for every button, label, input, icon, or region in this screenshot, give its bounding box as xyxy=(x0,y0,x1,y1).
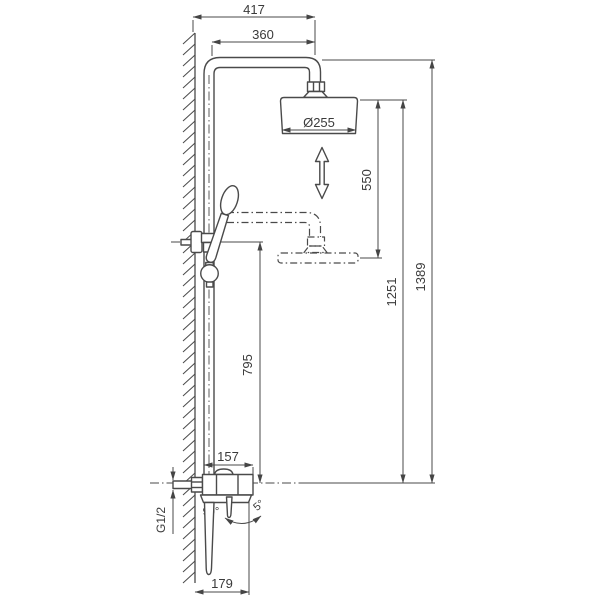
angle-label-5: 5° xyxy=(251,498,267,514)
shower-column-technical-drawing: 417 360 1389 1251 550 xyxy=(0,0,600,600)
phantom-lowered-position xyxy=(227,213,358,264)
mixer-body xyxy=(203,475,254,496)
slider-knob xyxy=(201,265,219,283)
head-ball-joint xyxy=(304,92,328,98)
dim-label-1389: 1389 xyxy=(413,263,428,292)
cartridge-dome xyxy=(215,469,234,475)
dim-label-1251: 1251 xyxy=(384,278,399,307)
dim-label-157: 157 xyxy=(217,449,239,464)
phantom-ball-joint xyxy=(304,246,327,253)
wall xyxy=(183,33,195,583)
dimension-550: 550 xyxy=(359,100,382,258)
wall-supply-stub xyxy=(181,240,192,246)
dim-label-795: 795 xyxy=(240,354,255,376)
wall-bracket-flange xyxy=(191,232,202,253)
dim-label-360: 360 xyxy=(252,27,274,42)
diverter-lever xyxy=(227,497,233,518)
slider-lower-joint xyxy=(207,282,214,287)
dim-label-417: 417 xyxy=(243,2,265,17)
overhead-shower: Ø255 xyxy=(281,82,358,134)
dimension-thread: G1/2 xyxy=(154,467,173,534)
dim-label-550: 550 xyxy=(359,169,374,191)
hand-shower-assembly xyxy=(171,183,242,287)
dim-label-thread: G1/2 xyxy=(154,507,168,533)
dim-label-179: 179 xyxy=(211,576,233,591)
phantom-connector-nut xyxy=(308,237,325,246)
wall-hatch xyxy=(183,33,195,583)
inlet-hex-nut xyxy=(192,478,203,493)
dim-label-head-diameter: Ø255 xyxy=(303,115,335,130)
dimension-360: 360 xyxy=(212,27,315,56)
inlet-pipe-stub xyxy=(173,481,192,489)
dimension-795: 795 xyxy=(220,242,263,483)
phantom-arm-inner xyxy=(227,223,310,238)
dimension-1251: 1251 xyxy=(360,100,407,483)
phantom-arm-outer xyxy=(227,213,321,238)
height-adjust-arrow-icon xyxy=(316,148,329,199)
shower-column: Ø255 xyxy=(171,58,358,575)
mixer-handle-lever xyxy=(205,503,215,575)
head-connector-nut xyxy=(308,82,325,92)
phantom-shower-head xyxy=(278,253,358,263)
hand-shower xyxy=(202,183,242,264)
technical-drawing-page: 417 360 1389 1251 550 xyxy=(0,0,600,600)
